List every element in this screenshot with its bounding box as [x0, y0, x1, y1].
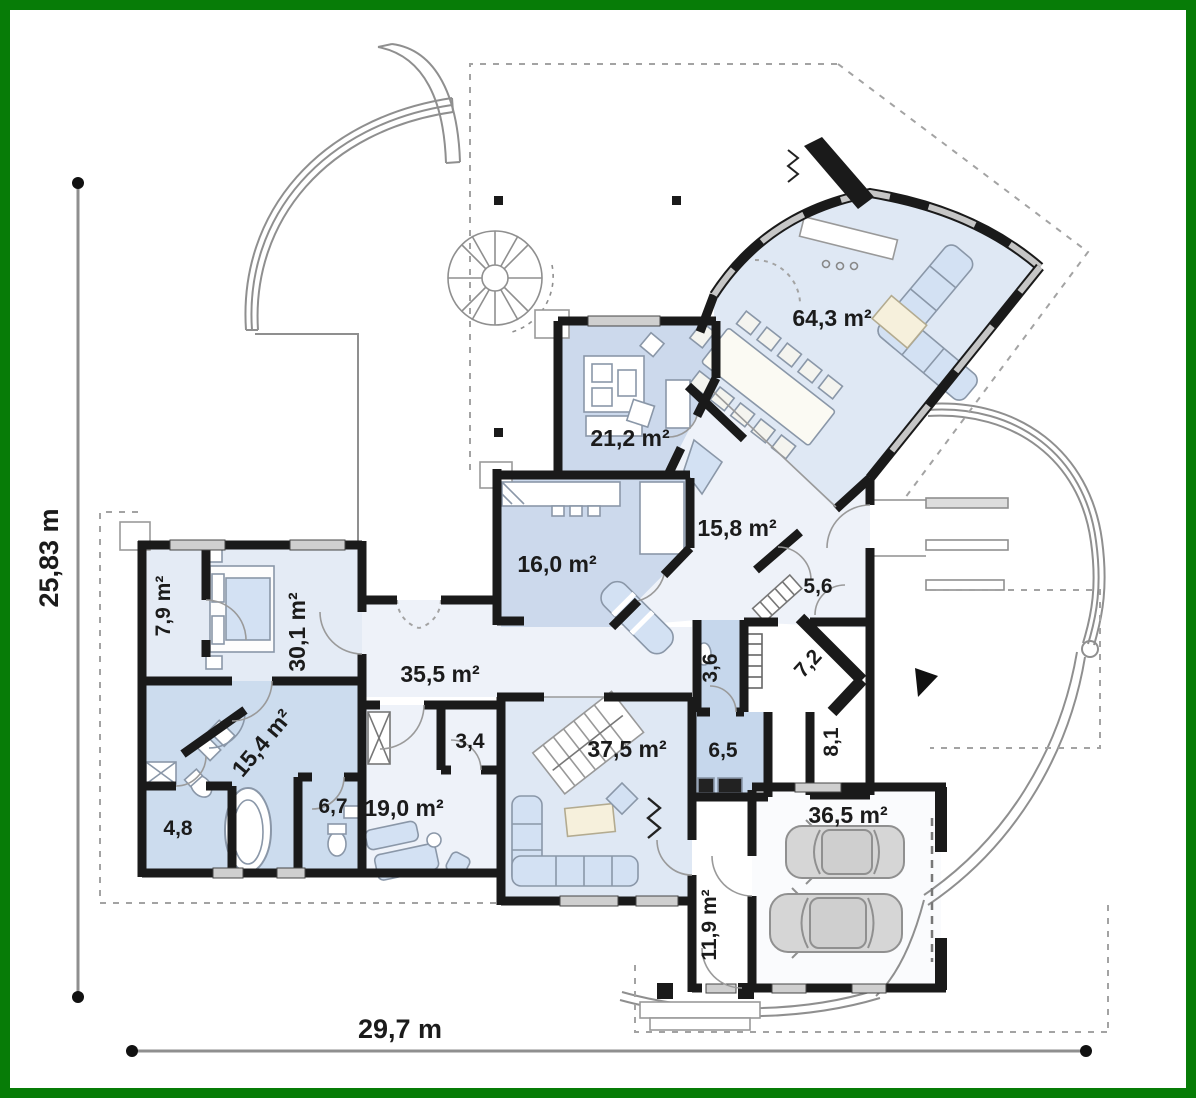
washer-icon	[146, 762, 176, 784]
room-label-utility-hall: 11,9 m²	[698, 889, 721, 960]
room-label-hall: 15,8 m²	[697, 515, 777, 541]
wardrobe-box	[368, 712, 390, 764]
room-label-corridor: 35,5 m²	[400, 661, 480, 687]
room-label-living-dining: 64,3 m²	[792, 305, 872, 331]
room-label-wardrobe: 7,9 m²	[152, 576, 175, 637]
room-label-garage: 36,5 m²	[808, 802, 888, 828]
car-icon	[770, 888, 902, 958]
washer-unit	[698, 778, 714, 793]
room-label-laundry: 6,5	[708, 739, 738, 762]
car-icon	[786, 820, 904, 884]
dimension-height-label: 25,83 m	[34, 508, 64, 607]
room-label-family-room: 37,5 m²	[587, 736, 667, 762]
room-label-kitchen: 16,0 m²	[517, 551, 597, 577]
bed	[206, 549, 274, 669]
dimension-width-label: 29,7 m	[358, 1014, 442, 1044]
room-label-closet: 3,4	[455, 730, 485, 753]
room-label-bedroom: 30,1 m²	[284, 592, 310, 672]
portico-column	[738, 983, 754, 999]
portico-column	[657, 983, 673, 999]
room-label-wc-small: 3,6	[699, 653, 722, 682]
room-label-toilet: 6,7	[318, 795, 347, 818]
room-label-storage: 4,8	[163, 817, 193, 840]
room-label-vestibule: 5,6	[803, 575, 832, 598]
floor-plan-canvas: 64,3 m² 21,2 m² 15,8 m² 16,0 m² 5,6 7,9 …	[10, 10, 1186, 1088]
room-label-office: 21,2 m²	[590, 425, 670, 451]
dryer-unit	[718, 778, 742, 793]
room-label-lounge: 19,0 m²	[364, 795, 444, 821]
room-label-pantry: 8,1	[820, 727, 843, 757]
floor-plan-frame: 64,3 m² 21,2 m² 15,8 m² 16,0 m² 5,6 7,9 …	[0, 0, 1196, 1098]
